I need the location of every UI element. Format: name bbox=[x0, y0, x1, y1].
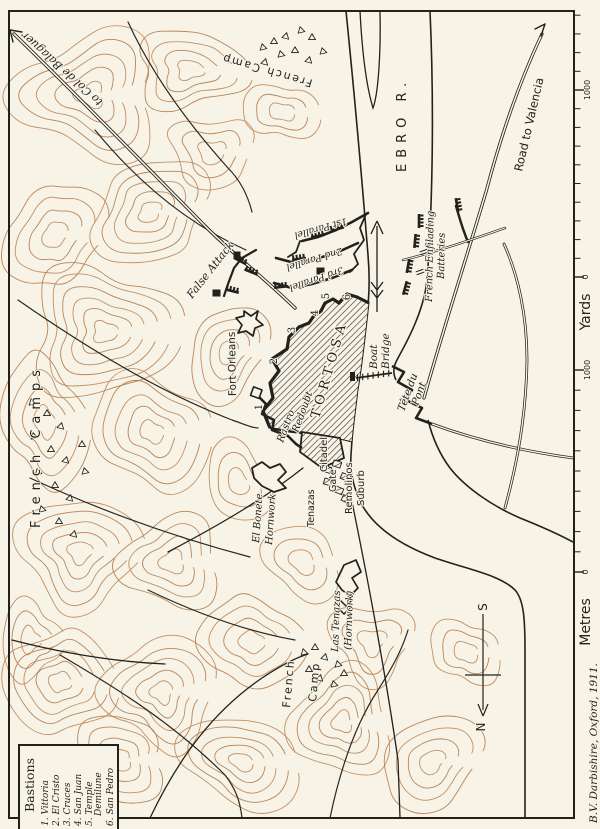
rastro-redoubt-fort bbox=[251, 387, 263, 399]
legend-item: Demilune bbox=[94, 772, 104, 817]
label-las-tenazas-2: (Hornwork) bbox=[343, 590, 356, 650]
map-page: S N Bastions 1. Vittoria 2. El Cristo 3.… bbox=[0, 0, 600, 829]
battery-tooth bbox=[227, 285, 228, 289]
bastion-number-5: 5 bbox=[321, 293, 332, 299]
scale-yards-label: Yards bbox=[578, 294, 594, 332]
label-citadel: Citadel bbox=[319, 437, 330, 472]
legend-item: 3. Cruces bbox=[63, 782, 73, 826]
legend-bastions: Bastions 1. Vittoria 2. El Cristo 3. Cru… bbox=[19, 745, 118, 829]
battery-tooth bbox=[458, 209, 462, 210]
scale-metres-label: Metres bbox=[578, 598, 594, 646]
label-enfilading-2: Batteries bbox=[436, 233, 448, 280]
bastion-number-4: 4 bbox=[310, 310, 321, 316]
compass-north-label: N bbox=[474, 723, 488, 732]
battery-tooth bbox=[230, 286, 231, 290]
battery-tooth bbox=[409, 261, 413, 262]
scale-yards-1000: 1000 bbox=[583, 80, 592, 100]
bridge-gate bbox=[350, 372, 355, 381]
bastion-number-2: 2 bbox=[269, 358, 280, 364]
label-remolinos-1: Remolinos bbox=[344, 462, 355, 514]
label-boat-bridge-2: Bridge bbox=[380, 333, 392, 370]
battery-tooth bbox=[456, 199, 460, 200]
legend-title: Bastions bbox=[22, 758, 37, 812]
label-remolinos-2: Suburb bbox=[356, 470, 367, 506]
battery-tooth bbox=[233, 287, 234, 291]
legend-item: 6. San Pedro bbox=[106, 767, 116, 826]
label-enfilading-1: French Enfilading bbox=[424, 211, 437, 303]
bastion-number-3: 3 bbox=[287, 327, 298, 333]
scale-metres-zero: 0 bbox=[581, 569, 590, 574]
battery-tooth bbox=[407, 271, 411, 272]
siege-battery-redoubt bbox=[213, 290, 220, 296]
battery-tooth bbox=[237, 288, 238, 292]
tortosa-siege-map: S N Bastions 1. Vittoria 2. El Cristo 3.… bbox=[0, 0, 600, 829]
battery-tooth bbox=[405, 289, 409, 290]
battery-tooth bbox=[408, 264, 412, 265]
battery-tooth bbox=[404, 293, 408, 294]
scale-metres-1000: 1000 bbox=[583, 360, 592, 380]
label-tenazas-gate-2: Gate bbox=[328, 469, 339, 492]
battery-tooth bbox=[457, 206, 461, 207]
bastion-number-6: 6 bbox=[342, 294, 353, 300]
battery-tooth bbox=[406, 286, 410, 287]
legend-item: 2. El Cristo bbox=[52, 774, 62, 827]
compass-south-label: S bbox=[476, 603, 490, 611]
bastion-number-1: 1 bbox=[254, 404, 265, 410]
label-fort-orleans: Fort Orleans bbox=[226, 332, 239, 397]
credit-signature: B.V. Darbishire, Oxford, 1911. bbox=[588, 663, 600, 824]
battery-tooth bbox=[408, 267, 412, 268]
label-french-camps-west: French Camps bbox=[29, 364, 44, 528]
legend-item: 4. San Juan bbox=[74, 774, 84, 827]
label-boat-bridge-1: Boat bbox=[368, 344, 380, 370]
battery-tooth bbox=[406, 283, 410, 284]
label-ebro-river: EBRO R. bbox=[395, 77, 410, 172]
legend-item: 1. Vittoria bbox=[41, 780, 51, 826]
battery-tooth bbox=[457, 202, 461, 203]
battery-tooth bbox=[293, 255, 294, 259]
label-las-tenazas-1: Las Tenazas bbox=[330, 590, 343, 653]
scale-yards-zero: 0 bbox=[581, 274, 590, 279]
label-tenazas-gate-1: Tenazas bbox=[306, 489, 317, 528]
